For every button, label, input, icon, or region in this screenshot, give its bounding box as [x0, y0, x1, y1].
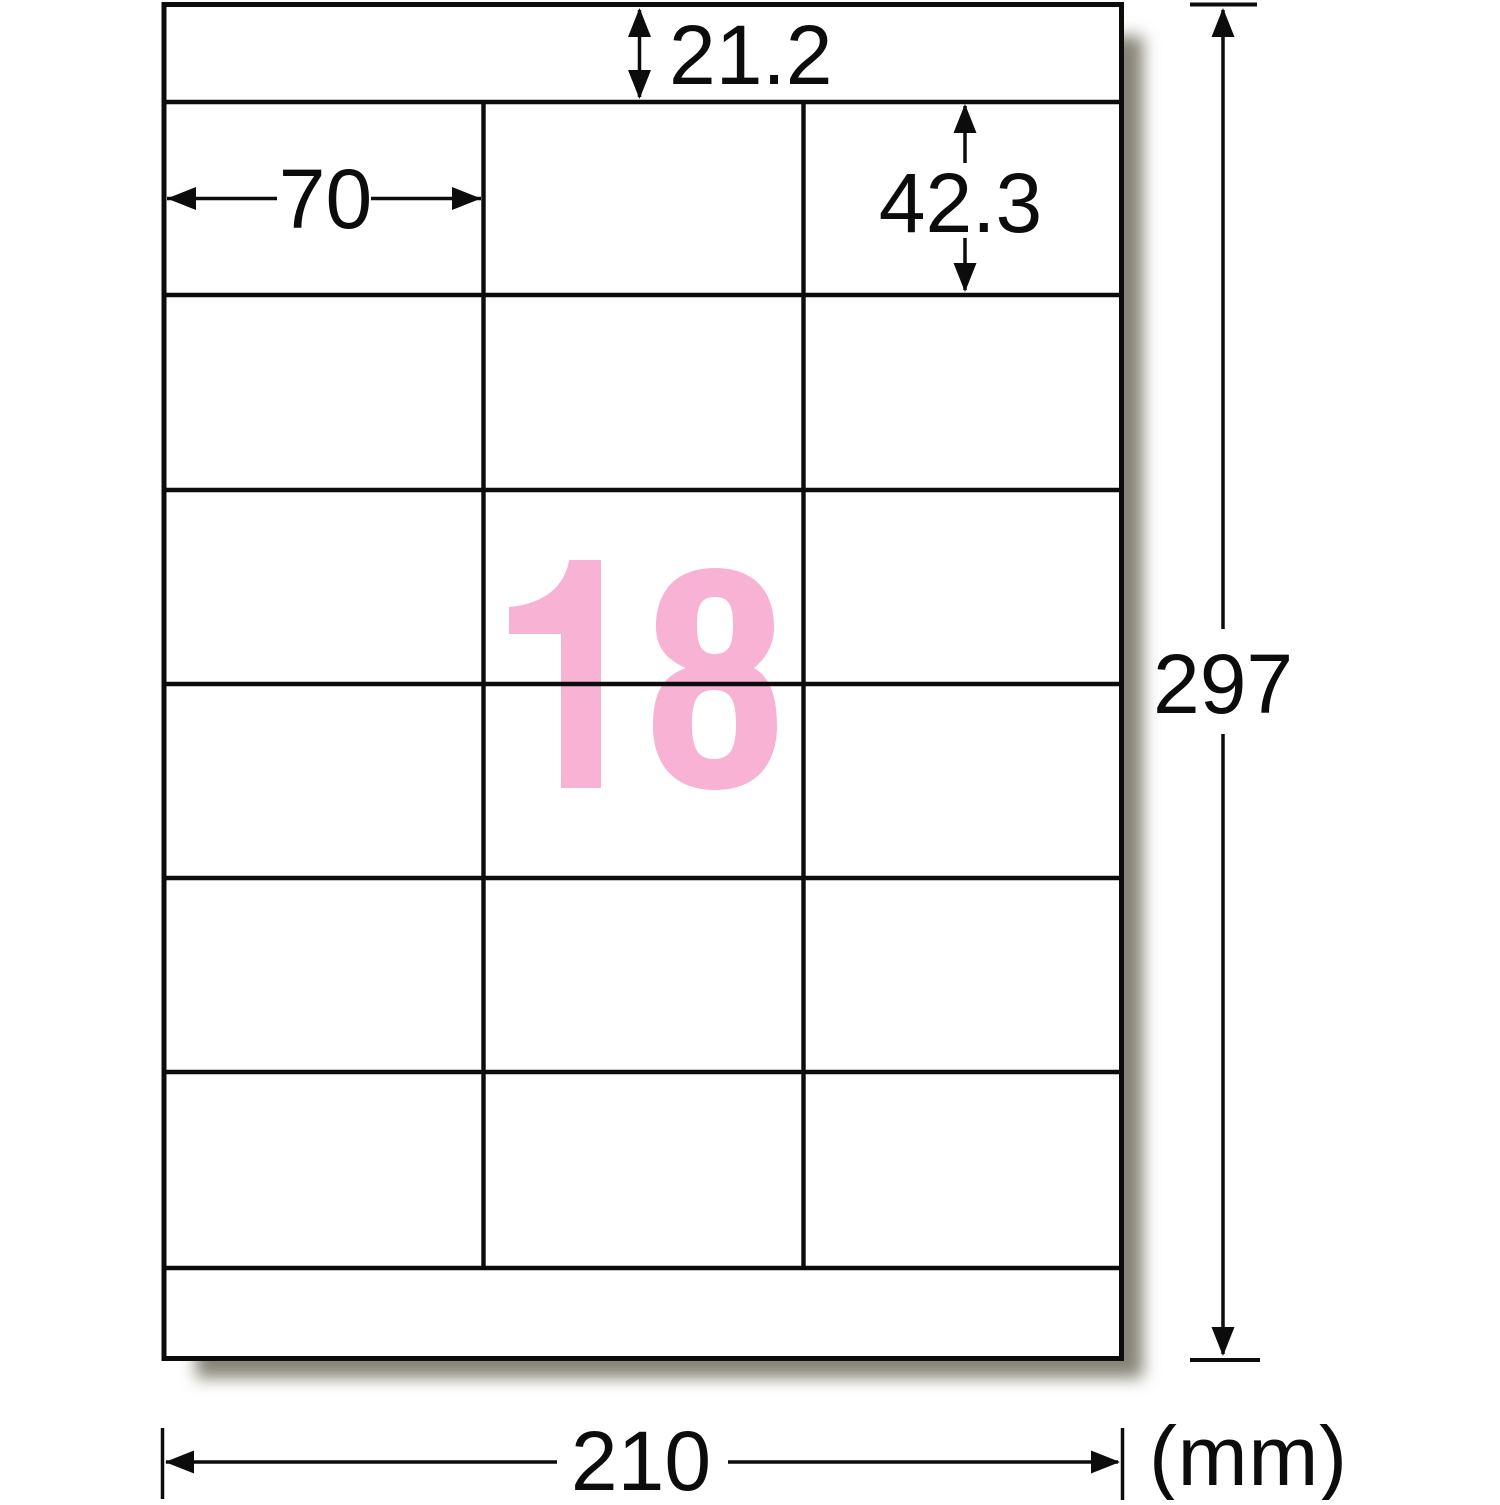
svg-text:297: 297 — [1153, 637, 1293, 731]
svg-text:42.3: 42.3 — [879, 156, 1043, 250]
svg-text:70: 70 — [279, 152, 372, 246]
svg-text:21.2: 21.2 — [669, 8, 833, 102]
svg-text:(mm): (mm) — [1149, 1409, 1348, 1500]
svg-text:210: 210 — [571, 1414, 711, 1500]
